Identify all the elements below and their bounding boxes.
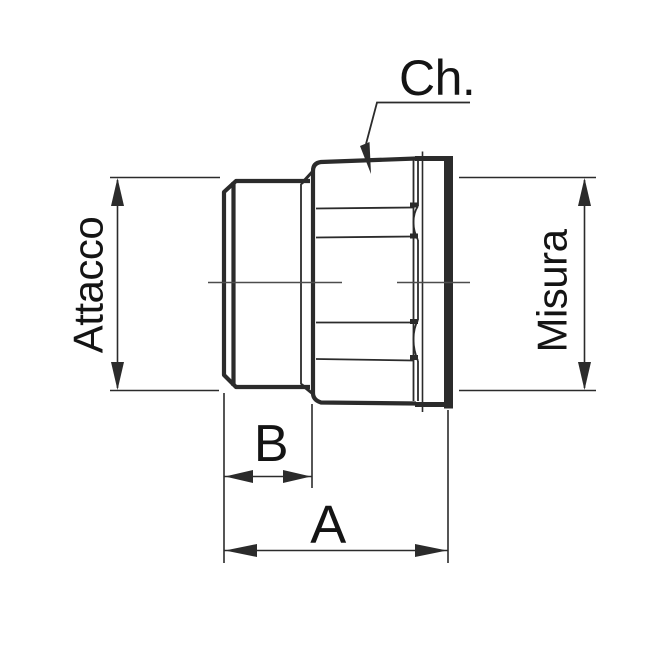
- b-arrow-left: [225, 470, 253, 483]
- hex-face-line-2: [316, 237, 413, 238]
- hex-edge-tick-3: [410, 319, 418, 324]
- hex-section: [313, 159, 418, 404]
- fitting-body: [208, 152, 470, 413]
- attacco-arrow-up: [111, 178, 124, 206]
- misura-label: Misura: [529, 228, 576, 352]
- hex-edge-tick-4: [410, 355, 418, 360]
- b-label: B: [254, 415, 288, 473]
- a-label: A: [310, 495, 346, 555]
- attacco-arrow-down: [111, 362, 124, 390]
- thread-outline: [224, 181, 310, 387]
- hex-edge-tick-1: [410, 203, 418, 208]
- misura-arrow-up: [578, 178, 591, 206]
- dimension-attacco: Attacco: [65, 178, 220, 391]
- attacco-label: Attacco: [65, 217, 112, 354]
- hex-face-line-1: [316, 208, 413, 209]
- hex-face-line-4: [316, 359, 413, 361]
- chamfer-leader-arrowhead: [360, 142, 371, 174]
- chamfer-callout: Ch.: [360, 50, 475, 174]
- chamfer-leader-line: [366, 103, 470, 145]
- misura-arrow-down: [578, 362, 591, 390]
- technical-drawing-canvas: Ch. Attacco Misura B A: [0, 0, 670, 657]
- dimension-misura: Misura: [459, 178, 596, 391]
- dimension-b: B: [224, 393, 312, 563]
- hex-edge-tick-2: [410, 234, 418, 239]
- hex-outline-top: [313, 159, 416, 404]
- collar-section: [415, 152, 449, 413]
- chamfer-label: Ch.: [399, 50, 475, 106]
- a-arrow-left: [225, 544, 257, 557]
- fitting-dimension-drawing: Ch. Attacco Misura B A: [0, 0, 670, 657]
- a-arrow-right: [415, 544, 447, 557]
